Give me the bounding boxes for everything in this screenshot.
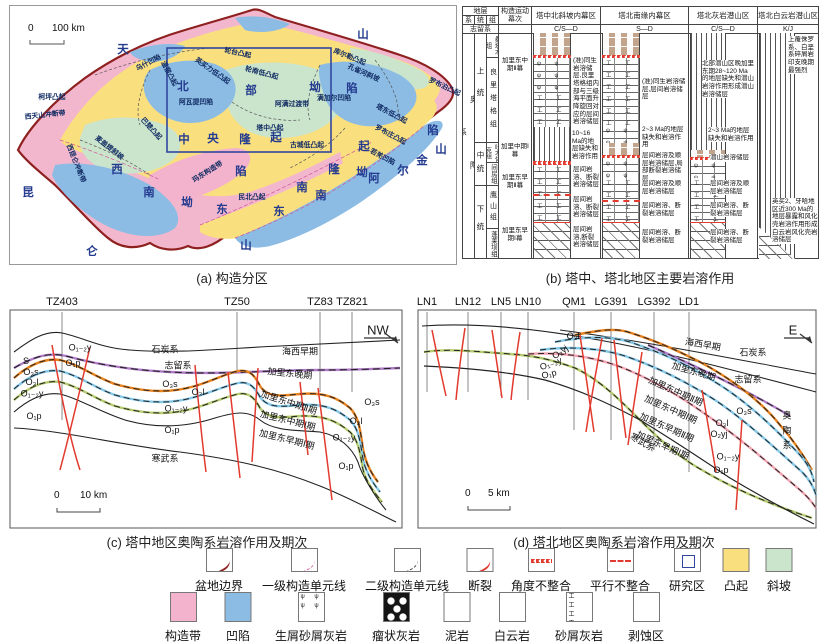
map-unit-label: 乌什凹陷 <box>134 51 163 73</box>
section-d-label: O₃l <box>567 331 580 341</box>
map-unit-label: 麦盖提斜坡 <box>94 133 127 162</box>
legend-label: 凸起 <box>724 577 748 594</box>
legend-item-fault: 断裂 <box>467 548 494 594</box>
c2-mudstone-top <box>602 33 640 56</box>
map-region-char: 天 <box>117 41 129 57</box>
legend-label: 凹陷 <box>226 627 250 643</box>
section-c-label: O₁₋₂y <box>165 404 188 415</box>
section-d-label: O₁p <box>713 465 728 475</box>
section-c-label: O₁₋₂y <box>69 343 92 354</box>
c1-bioclastic-limestone: ψ ψ ψ ψ ψ ψ ψ ψ ψ ψ ψ ψ <box>533 58 571 93</box>
c2-text-4: 层间岩溶及顺层岩溶储层 <box>642 180 686 195</box>
c1-erosion-zone <box>533 127 571 162</box>
map-unit-label: 轮台凸起 <box>224 44 253 59</box>
legend-item-mud: 泥岩 <box>444 592 471 643</box>
map-region-char: 尔 <box>397 162 409 178</box>
map-region-char: 陷 <box>235 163 247 179</box>
c4-text-1: 上覆侏罗系、白垩系碎屑岩印支晚期最强烈 <box>788 36 818 74</box>
section-c-label: O₃s <box>23 367 38 377</box>
legend-label: 构造带 <box>165 627 201 643</box>
episode-4: 加里东早期Ⅰ幕 <box>500 227 530 242</box>
section-d-direction: E <box>789 324 798 337</box>
c1-text-2: 10~16 Ma的地层缺失和岩溶作用 <box>572 130 600 161</box>
section-c-label: O₃l <box>350 416 363 426</box>
section-d-label: 系 <box>782 439 791 452</box>
section-c-label: 志留系 <box>164 359 191 372</box>
c3-text-4: 层间岩溶及顺层岩溶储层 <box>710 180 754 195</box>
c2-text-5: 层间岩溶、断裂岩溶储层 <box>642 202 686 217</box>
well-label: LG392 <box>637 296 670 308</box>
map-region-char: 起 <box>358 138 370 154</box>
section-c-scale-zero: 0 <box>54 490 60 501</box>
map-region-char: 东 <box>216 201 228 217</box>
c3-text-3: 潜山岩溶储层 <box>710 154 754 162</box>
map-region-char: 昆 <box>22 184 34 200</box>
legend-label: 斜坡 <box>767 577 791 594</box>
map-region-char: 坳 <box>356 164 368 180</box>
well-label: TZ821 <box>336 296 368 308</box>
hdr-region-1: 塔中北斜坡内幕区 <box>531 6 601 25</box>
caption-b: (b) 塔中、塔北地区主要岩溶作用 <box>546 268 735 287</box>
legend-item-sandy: 工 工 工 工砂屑灰岩 <box>555 592 603 643</box>
legend-swatch-parallel <box>606 548 633 572</box>
hdr-region-4: 塔北白云岩潜山区 <box>757 6 819 25</box>
c2-parallel-unconf <box>602 200 640 202</box>
section-c-label: O₃s <box>364 397 379 407</box>
section-d-label: 陶 <box>782 424 791 437</box>
c1-text-1: (准)同生岩溶储层,良里塔格组内部与三级海平面升降旋回对应的层间岩溶储层 <box>573 57 599 126</box>
section-d-label: O₁₋₂y <box>717 452 740 463</box>
legend-swatch-basin <box>205 548 232 572</box>
section-d <box>415 308 819 530</box>
well-label: QM1 <box>562 296 586 308</box>
c3-bioclastic: ψ ψ ψ ψ ψ <box>690 160 726 178</box>
episode-2: 加里中期Ⅰ幕 <box>500 143 530 158</box>
section-c-label: O₁₋₂y <box>21 389 44 400</box>
c2-text-1: (准)同生岩溶储层,层间岩溶储层 <box>642 78 686 101</box>
map-unit-label: 巴楚凸起 <box>139 115 165 142</box>
section-d-label: 石炭系 <box>739 346 766 359</box>
c1-parallel-unconf <box>533 194 571 196</box>
c2-text-3: 层间岩溶及顺层岩溶储层,局部断裂岩溶储层 <box>642 152 686 183</box>
map-region-char: 东 <box>273 203 285 219</box>
map-unit-label: 温宿凸起 <box>159 59 181 88</box>
hdr-region-2: 塔北南缘内幕区 <box>600 6 689 25</box>
c2-bioclastic-1: ψ ψ ψ ψ ψ ψ <box>602 125 640 143</box>
well-label: TZ50 <box>224 296 250 308</box>
c2-sandy-limestone-1: 工 工 工 工 工 工 工 工 工 工 工 工 工 工 <box>602 58 640 125</box>
section-c-label: O₃s <box>162 379 177 389</box>
section-d-label: 奥 <box>782 409 791 422</box>
legend-item-angular: 角度不整合 <box>511 548 571 594</box>
caption-a: (a) 构造分区 <box>196 268 268 287</box>
c2-text-2: 2~3 Ma的地层缺失和岩溶作用 <box>642 126 686 149</box>
legend-swatch-second <box>393 548 420 572</box>
legend-swatch-mud <box>444 592 471 622</box>
section-c-label: O₁p <box>26 411 41 421</box>
legend-swatch-study <box>673 548 700 572</box>
legend-swatch-dolo <box>498 592 525 622</box>
c3-text-5: 层间岩溶、断裂岩溶储层 <box>710 202 754 217</box>
section-c-label: 寒武系 <box>151 452 178 465</box>
legend-item-slope: 斜坡 <box>766 548 793 594</box>
legend-label: 断裂 <box>468 577 492 594</box>
map-region-char: 山 <box>357 26 369 42</box>
legend-swatch-first <box>290 548 317 572</box>
map-region-char: 央 <box>207 130 219 146</box>
map-region-char: 部 <box>245 82 257 98</box>
map-region-char: 隆 <box>328 161 340 177</box>
map-region-char: 山 <box>435 141 447 157</box>
section-d-label: O₂yj <box>711 429 728 439</box>
legend-label: 生屑砂屑灰岩 <box>275 627 347 643</box>
map-labels-layer: 天山昆仑山阿尔金山北部坳陷中央隆起西南坳陷东南隆起东南坳陷乌什凹陷温宿凸起英买力… <box>0 0 460 268</box>
legend-item-uplift: 凸起 <box>723 548 750 594</box>
section-d-label: O₃l <box>716 418 729 428</box>
legend-item-second: 二级构造单元线 <box>365 548 449 594</box>
well-label: LN12 <box>455 296 481 308</box>
map-region-char: 隆 <box>239 131 251 147</box>
map-unit-label: 古城低凸起 <box>290 139 324 149</box>
legend-label: 白云岩 <box>494 627 530 643</box>
well-label: TZ403 <box>46 296 78 308</box>
legend-item-parallel: 平行不整合 <box>590 548 650 594</box>
c1-mudstone <box>533 33 571 56</box>
map-unit-label: 罗布泊凸起 <box>427 74 462 97</box>
well-label: LN10 <box>515 296 541 308</box>
map-unit-label: 阿瓦提凹陷 <box>179 96 213 106</box>
map-unit-label: 英买力低凸起 <box>193 54 232 86</box>
map-unit-label: 若羌凹陷 <box>369 145 398 167</box>
episode-3: 加里东早期Ⅱ幕 <box>500 174 530 189</box>
legend-swatch-nodular <box>382 592 409 622</box>
c2-bioclastic-2: ψ ψ ψ ψ ψ ψ <box>602 158 640 178</box>
hdr-region-3: 塔北灰岩潜山区 <box>688 6 758 25</box>
legend-swatch-angular <box>527 548 554 572</box>
map-unit-label: 塔中凸起 <box>256 122 283 132</box>
c1-text-5: 层间岩溶,断裂岩溶储层 <box>573 226 599 249</box>
section-c-direction: NW <box>367 324 389 337</box>
section-c-label: O₃l <box>26 377 39 387</box>
legend-label: 泥岩 <box>445 627 469 643</box>
section-c-label: O₁p <box>338 461 353 471</box>
legend-item-belt: 构造带 <box>165 592 201 643</box>
map-unit-label: 民北凸起 <box>238 191 265 201</box>
well-label: LD1 <box>679 296 699 308</box>
legend-swatch-belt <box>169 592 196 622</box>
well-label: LG391 <box>594 296 627 308</box>
legend-item-nodular: 瘤状灰岩 <box>372 592 420 643</box>
map-region-char: 阿 <box>368 170 380 186</box>
c2-text-6: 层间岩溶、断裂岩溶储层 <box>642 229 686 244</box>
legend-item-first: 一级构造单元线 <box>262 548 346 594</box>
section-c-label: S <box>23 356 29 366</box>
c3-text-2: 2~3 Ma的地层缺失和岩溶作用 <box>708 127 754 142</box>
legend-swatch-psi: ψ ψ ψ ψ <box>297 592 324 622</box>
section-c-label: O₃l <box>192 387 205 397</box>
section-c-label: 石炭系 <box>151 343 178 356</box>
section-d-scale-label: 5 km <box>488 488 510 499</box>
map-region-char: 坳 <box>181 194 193 210</box>
legend-item-dolo: 白云岩 <box>494 592 530 643</box>
map-unit-label: 满加尔凹陷 <box>317 92 351 102</box>
episode-1: 加里东中期Ⅱ幕 <box>500 57 530 72</box>
legend-swatch-sag <box>225 592 252 622</box>
legend-label: 研究区 <box>669 577 705 594</box>
legend-item-sag: 凹陷 <box>225 592 252 643</box>
legend-label: 瘤状灰岩 <box>372 627 420 643</box>
map-unit-label: 柯坪凸起 <box>38 91 65 101</box>
legend-swatch-sandy: 工 工 工 工 <box>565 592 592 622</box>
well-label: LN5 <box>491 296 511 308</box>
legend-item-erode: 剥蚀区 <box>628 592 664 643</box>
map-region-char: 仑 <box>86 243 98 259</box>
legend-item-study: 研究区 <box>669 548 705 594</box>
c1-text-4: 层间岩溶、断裂岩溶储层 <box>573 196 599 219</box>
legend-swatch-uplift <box>723 548 750 572</box>
legend-item-basin: 盆地边界 <box>195 548 243 594</box>
section-c-label: O₁p <box>164 425 179 435</box>
c1-sandy-limestone: 工 工 工 工 工 工 工 工 工 <box>533 93 571 127</box>
map-unit-label: 玛东构造带 <box>190 158 224 184</box>
map-unit-label: 轮南低凸起 <box>244 63 279 81</box>
legend-swatch-fault <box>467 548 494 572</box>
well-label: LN1 <box>417 296 437 308</box>
section-c-scale-label: 10 km <box>80 490 107 501</box>
map-unit-label: 西天山冲断带 <box>24 107 66 121</box>
hdr-episode: 构造运动幕次 <box>498 6 532 25</box>
figure-root: 0 100 km 天山昆仑山阿尔金山北部坳陷中央隆起西南坳陷东南隆起东南坳陷乌什… <box>0 0 822 643</box>
map-region-char: 金 <box>416 152 428 168</box>
section-c-label: O₁p <box>65 358 80 368</box>
c2-dolomite <box>602 223 640 259</box>
map-region-char: 山 <box>240 237 252 253</box>
map-region-char: 南 <box>315 187 327 203</box>
psi-symbols: ψ ψ ψ ψ <box>298 593 323 621</box>
intraclast-symbols: 工 工 工 工 <box>566 593 591 621</box>
c1-dolomite <box>533 223 571 259</box>
legend-swatch-slope <box>766 548 793 572</box>
section-d-label: O₃s <box>736 406 751 416</box>
map-unit-label: 罗布庄凸起 <box>374 122 409 147</box>
legend-item-psi: ψ ψ ψ ψ生屑砂屑灰岩 <box>275 592 347 643</box>
map-region-char: 南 <box>143 184 155 200</box>
section-c-label: O₁₋₂y <box>333 433 356 444</box>
well-label: TZ83 <box>307 296 333 308</box>
legend-swatch-erode <box>632 592 659 622</box>
map-region-char: 南 <box>296 179 308 195</box>
c3-text-1: 北部潜山区晚加里东期28~120 Ma的地层缺失和潜山岩溶作用形成潜山岩溶储层 <box>702 60 754 98</box>
section-d-label: 志留系 <box>734 373 761 386</box>
map-region-char: 中 <box>178 131 190 147</box>
map-region-char: 西 <box>111 161 123 177</box>
c4-text-2: 英买2、牙哈地区近300 Ma的地层暴露和风化壳岩溶作用形成白云岩风化壳岩溶储层 <box>772 198 818 244</box>
section-c-label: 海西早期 <box>282 345 318 358</box>
map-unit-label: 阿满过渡带 <box>275 98 309 108</box>
section-c <box>8 308 404 530</box>
map-region-char: 陷 <box>427 122 439 138</box>
c3-text-6: 层间岩溶、断裂岩溶储层 <box>710 229 754 244</box>
legend-label: 砂屑灰岩 <box>555 627 603 643</box>
map-unit-label: 西昆仑冲断带 <box>65 142 90 184</box>
section-d-scale-zero: 0 <box>465 488 471 499</box>
c1-text-3: 层间岩溶、断裂岩溶储层 <box>573 166 599 189</box>
legend-label: 剥蚀区 <box>628 627 664 643</box>
